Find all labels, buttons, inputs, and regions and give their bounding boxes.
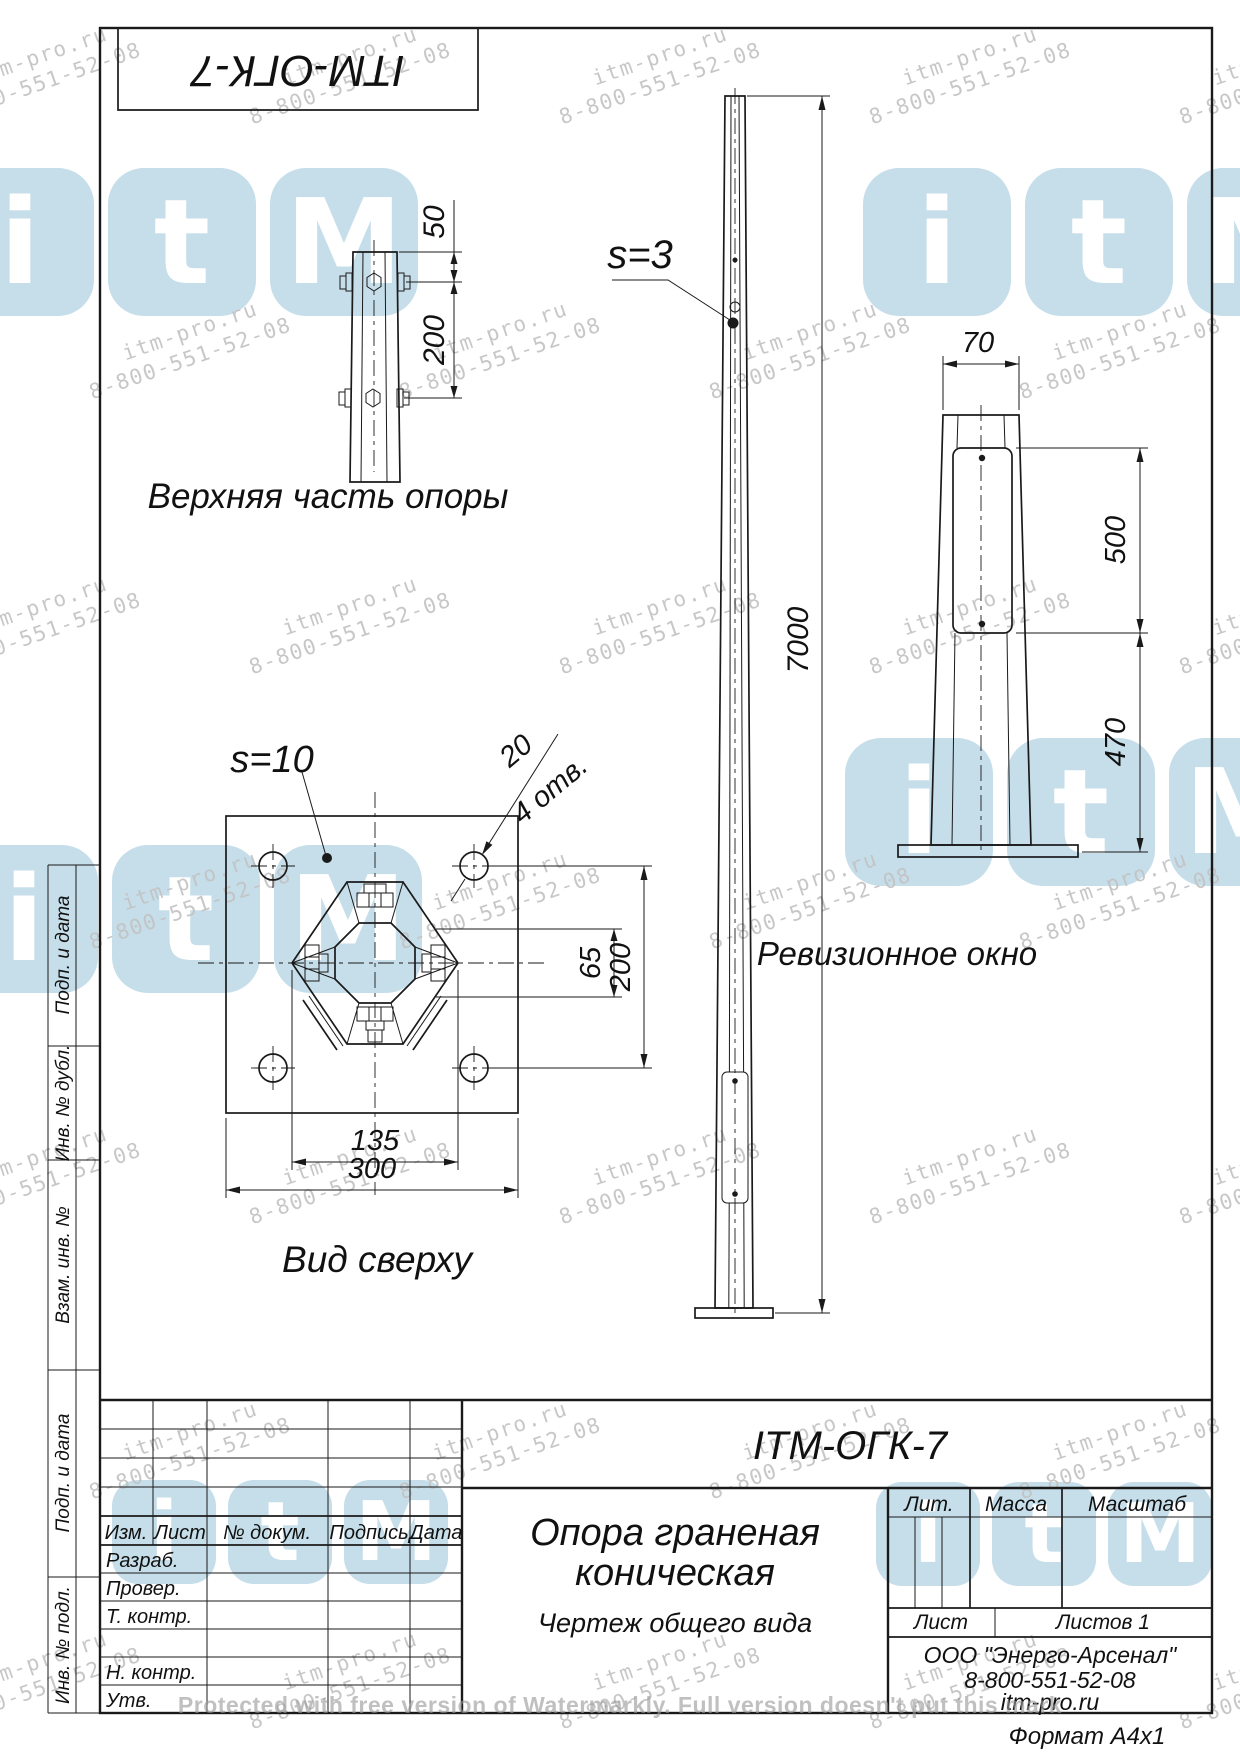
view-top-part: 50 200 Верхняя часть опоры (148, 200, 509, 516)
col-data: Дата (408, 1522, 463, 1544)
thickness-callout-s10: s=10 (230, 739, 332, 863)
view-top: s=10 20 4 отв. 65 200 (198, 728, 652, 1280)
bolt-set-upper (340, 273, 410, 291)
strip-label-inv-dubl: Инв. № дубл. (53, 1045, 74, 1162)
base-flange-side (898, 845, 1078, 857)
engineering-drawing: ITM-ОГК-7 Подп. и дата Инв. № дубл. Взам… (0, 0, 1240, 1755)
dim-470: 470 (1100, 718, 1132, 766)
col-podpis: Подпись (329, 1522, 408, 1544)
company-name: ООО "Энерго-Арсенал" (924, 1642, 1179, 1668)
caption-top-view: Вид сверху (282, 1239, 474, 1280)
dim-200: 200 (418, 315, 451, 366)
drawing-doc-type: Чертеж общего вида (538, 1608, 812, 1638)
holes-callout: 20 4 отв. (451, 728, 594, 901)
dim-200-top-view: 200 (605, 943, 637, 992)
drawing-name-line2: коническая (575, 1552, 775, 1594)
strip-label-podp-data-1: Подп. и дата (53, 896, 74, 1015)
col-dokum: № докум. (223, 1522, 311, 1544)
drawing-sheet: i t M i t M i t M i t M i t M i t M itm-… (0, 0, 1240, 1755)
drawing-code: ITM-ОГК-7 (753, 1424, 949, 1468)
dim-7000: 7000 (782, 606, 815, 673)
row-t-kontr: Т. контр. (106, 1606, 192, 1628)
col-list: Лист (152, 1522, 206, 1544)
dimension-7000: 7000 (747, 96, 830, 1313)
stamp-code-text: ITM-ОГК-7 (190, 46, 405, 95)
dimension-500-470: 500 470 (1016, 448, 1148, 852)
strip-label-podp-data-2: Подп. и дата (53, 1414, 74, 1533)
col-masshtab: Масштаб (1088, 1493, 1187, 1516)
col-massa: Масса (985, 1493, 1047, 1516)
drawing-name-line1: Опора граненая (530, 1512, 820, 1554)
caption-revision-window: Ревизионное окно (757, 935, 1037, 972)
side-strip: Подп. и дата Инв. № дубл. Взам. инв. № П… (48, 865, 100, 1713)
dim-65: 65 (575, 946, 607, 979)
sheet-frame (100, 28, 1212, 1713)
watermarkly-note: Protected with free version of Watermark… (0, 1692, 1240, 1719)
cell-list: Лист (912, 1611, 968, 1634)
row-prover: Провер. (106, 1578, 181, 1600)
strip-label-inv-podl: Инв. № подл. (53, 1586, 74, 1704)
dim-500: 500 (1100, 516, 1132, 564)
revision-window (953, 448, 1012, 633)
base-flange-front (695, 1308, 773, 1318)
view-revision-window: 70 500 470 Ревизионное окно (757, 327, 1148, 972)
label-s10: s=10 (230, 739, 313, 781)
cell-listov: Листов 1 (1054, 1611, 1150, 1634)
rotated-code-stamp: ITM-ОГК-7 (190, 46, 405, 95)
dim-50: 50 (418, 205, 451, 239)
label-s3: s=3 (607, 233, 673, 277)
strip-label-vzam-inv: Взам. инв. № (53, 1206, 74, 1324)
label-holes-dia: 20 (493, 728, 539, 774)
view-pole-front: s=3 7000 (607, 88, 830, 1318)
dim-70: 70 (962, 327, 994, 359)
dimension-65-200: 65 200 (436, 866, 652, 1068)
thickness-callout-s3: s=3 (607, 233, 740, 329)
row-razrab: Разраб. (106, 1550, 178, 1572)
dim-300: 300 (348, 1153, 396, 1185)
anchor-holes (251, 844, 496, 1090)
dimension-70: 70 (943, 327, 1019, 410)
col-lit: Лит. (902, 1493, 953, 1516)
row-n-kontr: Н. контр. (106, 1662, 196, 1684)
col-izm: Изм. (105, 1522, 148, 1544)
format-label: Формат А4х1 (1009, 1723, 1166, 1750)
caption-top-part: Верхняя часть опоры (148, 477, 509, 516)
dimension-50-200: 50 200 (399, 200, 462, 398)
